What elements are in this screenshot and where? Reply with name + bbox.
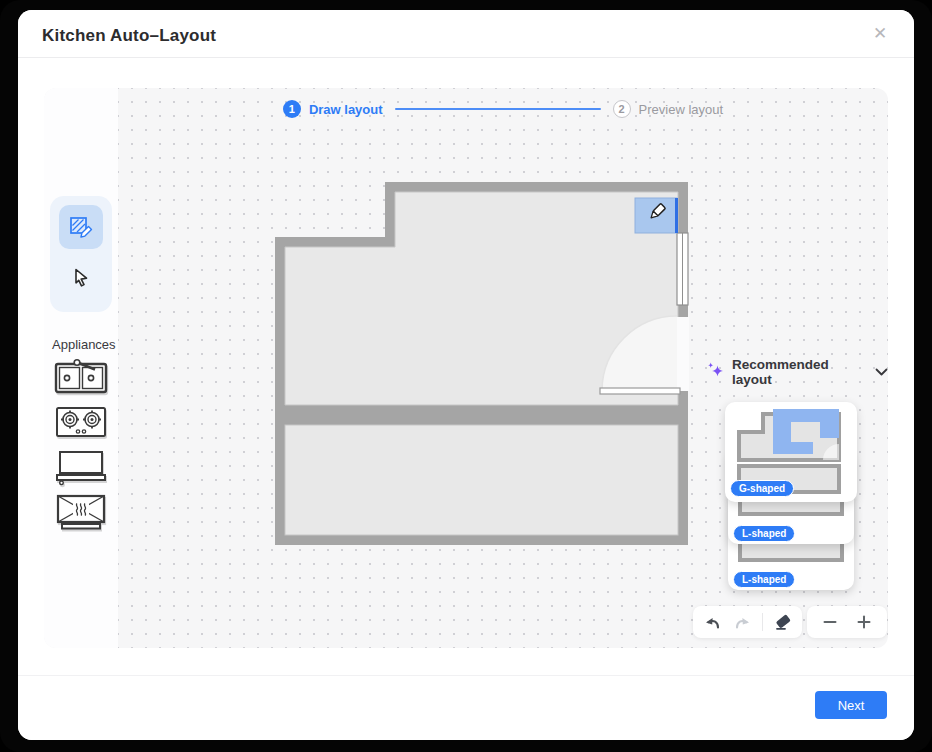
select-tool-button[interactable] bbox=[59, 257, 103, 301]
cursor-icon bbox=[69, 266, 93, 293]
sink-icon bbox=[53, 356, 109, 396]
layout-badge: L-shaped bbox=[733, 571, 795, 588]
eraser-button[interactable] bbox=[772, 611, 794, 633]
oven-icon bbox=[53, 492, 109, 532]
kitchen-autolayout-dialog: Kitchen Auto–Layout ✕ bbox=[18, 10, 914, 740]
zoom-out-button[interactable] bbox=[819, 611, 841, 633]
redo-icon bbox=[734, 613, 752, 631]
draw-area-icon bbox=[68, 213, 94, 242]
page-title: Kitchen Auto–Layout bbox=[42, 26, 216, 46]
step-1-circle: 1 bbox=[283, 100, 301, 118]
screenshot-frame: Kitchen Auto–Layout ✕ bbox=[0, 0, 932, 752]
appliances-label: Appliances bbox=[52, 337, 116, 352]
layout-badge: G-shaped bbox=[730, 480, 794, 497]
tool-group bbox=[50, 196, 112, 312]
undo-button[interactable] bbox=[701, 611, 723, 633]
eraser-icon bbox=[774, 613, 792, 631]
step-connector bbox=[395, 108, 601, 110]
cooktop-icon bbox=[53, 402, 109, 442]
dialog-header: Kitchen Auto–Layout ✕ bbox=[18, 10, 914, 58]
step-1-label: Draw layout bbox=[309, 102, 383, 117]
zoom-in-button[interactable] bbox=[853, 611, 875, 633]
left-panel: Appliances bbox=[44, 88, 118, 648]
draw-tool-button[interactable] bbox=[59, 205, 103, 249]
minus-icon bbox=[821, 613, 839, 631]
next-button[interactable]: Next bbox=[815, 691, 887, 719]
dialog-footer: Next bbox=[18, 675, 914, 740]
stepper: 1 Draw layout 2 Preview layout bbox=[118, 99, 888, 119]
plus-icon bbox=[855, 613, 873, 631]
layout-badge: L-shaped bbox=[733, 525, 795, 542]
step-2-label: Preview layout bbox=[639, 102, 724, 117]
editor-workspace: Appliances bbox=[44, 88, 888, 648]
edit-toolbar bbox=[693, 606, 802, 638]
layout-card-g-shaped[interactable]: G-shaped bbox=[725, 402, 857, 502]
appliance-range-hood[interactable] bbox=[52, 447, 110, 489]
appliance-sink[interactable] bbox=[52, 356, 110, 398]
step-2-circle: 2 bbox=[613, 100, 631, 118]
sparkle-icon bbox=[706, 361, 725, 384]
recommended-layout-toggle[interactable]: Recommended layout bbox=[706, 362, 888, 382]
recommended-layout-label: Recommended layout bbox=[732, 357, 868, 387]
zoom-toolbar bbox=[807, 606, 887, 638]
toolbar-divider bbox=[762, 613, 763, 631]
range-hood-icon bbox=[53, 447, 109, 487]
appliance-oven[interactable] bbox=[52, 492, 110, 534]
chevron-down-icon bbox=[875, 363, 888, 381]
redo-button[interactable] bbox=[732, 611, 754, 633]
undo-icon bbox=[703, 613, 721, 631]
close-icon[interactable]: ✕ bbox=[870, 24, 890, 44]
appliance-cooktop[interactable] bbox=[52, 402, 110, 444]
